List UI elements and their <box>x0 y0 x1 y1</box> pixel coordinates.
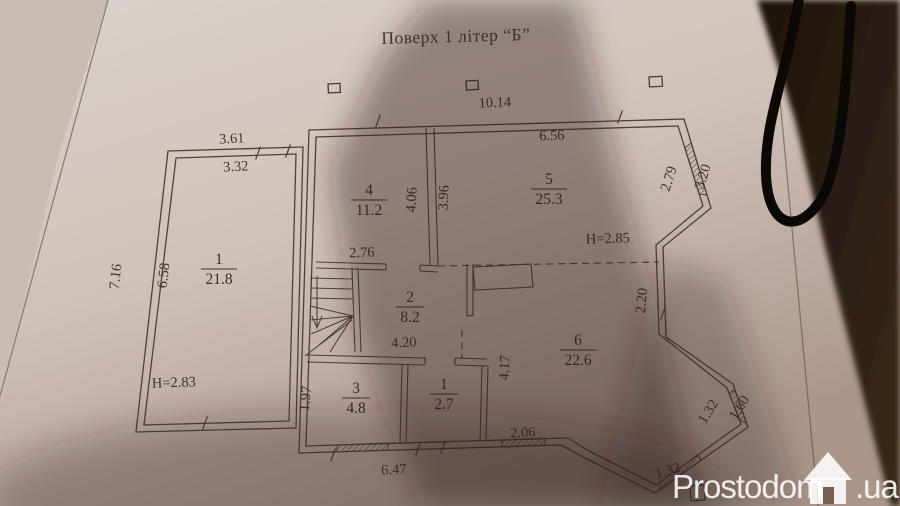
photo-of-floor-plan-document: Поверх 1 літер “Б” <box>0 0 900 506</box>
watermark-suffix: .ua <box>855 468 900 505</box>
watermark-text: Prostodom <box>672 468 823 505</box>
dimension-label: 1.97 <box>297 385 315 412</box>
dimension-label: 7.16 <box>107 263 126 290</box>
house-icon-door <box>823 487 834 504</box>
dimension-label: H=2.83 <box>152 374 197 392</box>
dimension-label: 6.58 <box>155 262 174 289</box>
dimension-label: 3.32 <box>223 158 249 175</box>
dimension-label: 3.61 <box>219 130 245 147</box>
room-area: 21.8 <box>205 271 232 288</box>
floor-plan-scene: Поверх 1 літер “Б” <box>0 0 900 506</box>
room-number: 1 <box>215 251 223 268</box>
room-number: 3 <box>352 380 360 397</box>
